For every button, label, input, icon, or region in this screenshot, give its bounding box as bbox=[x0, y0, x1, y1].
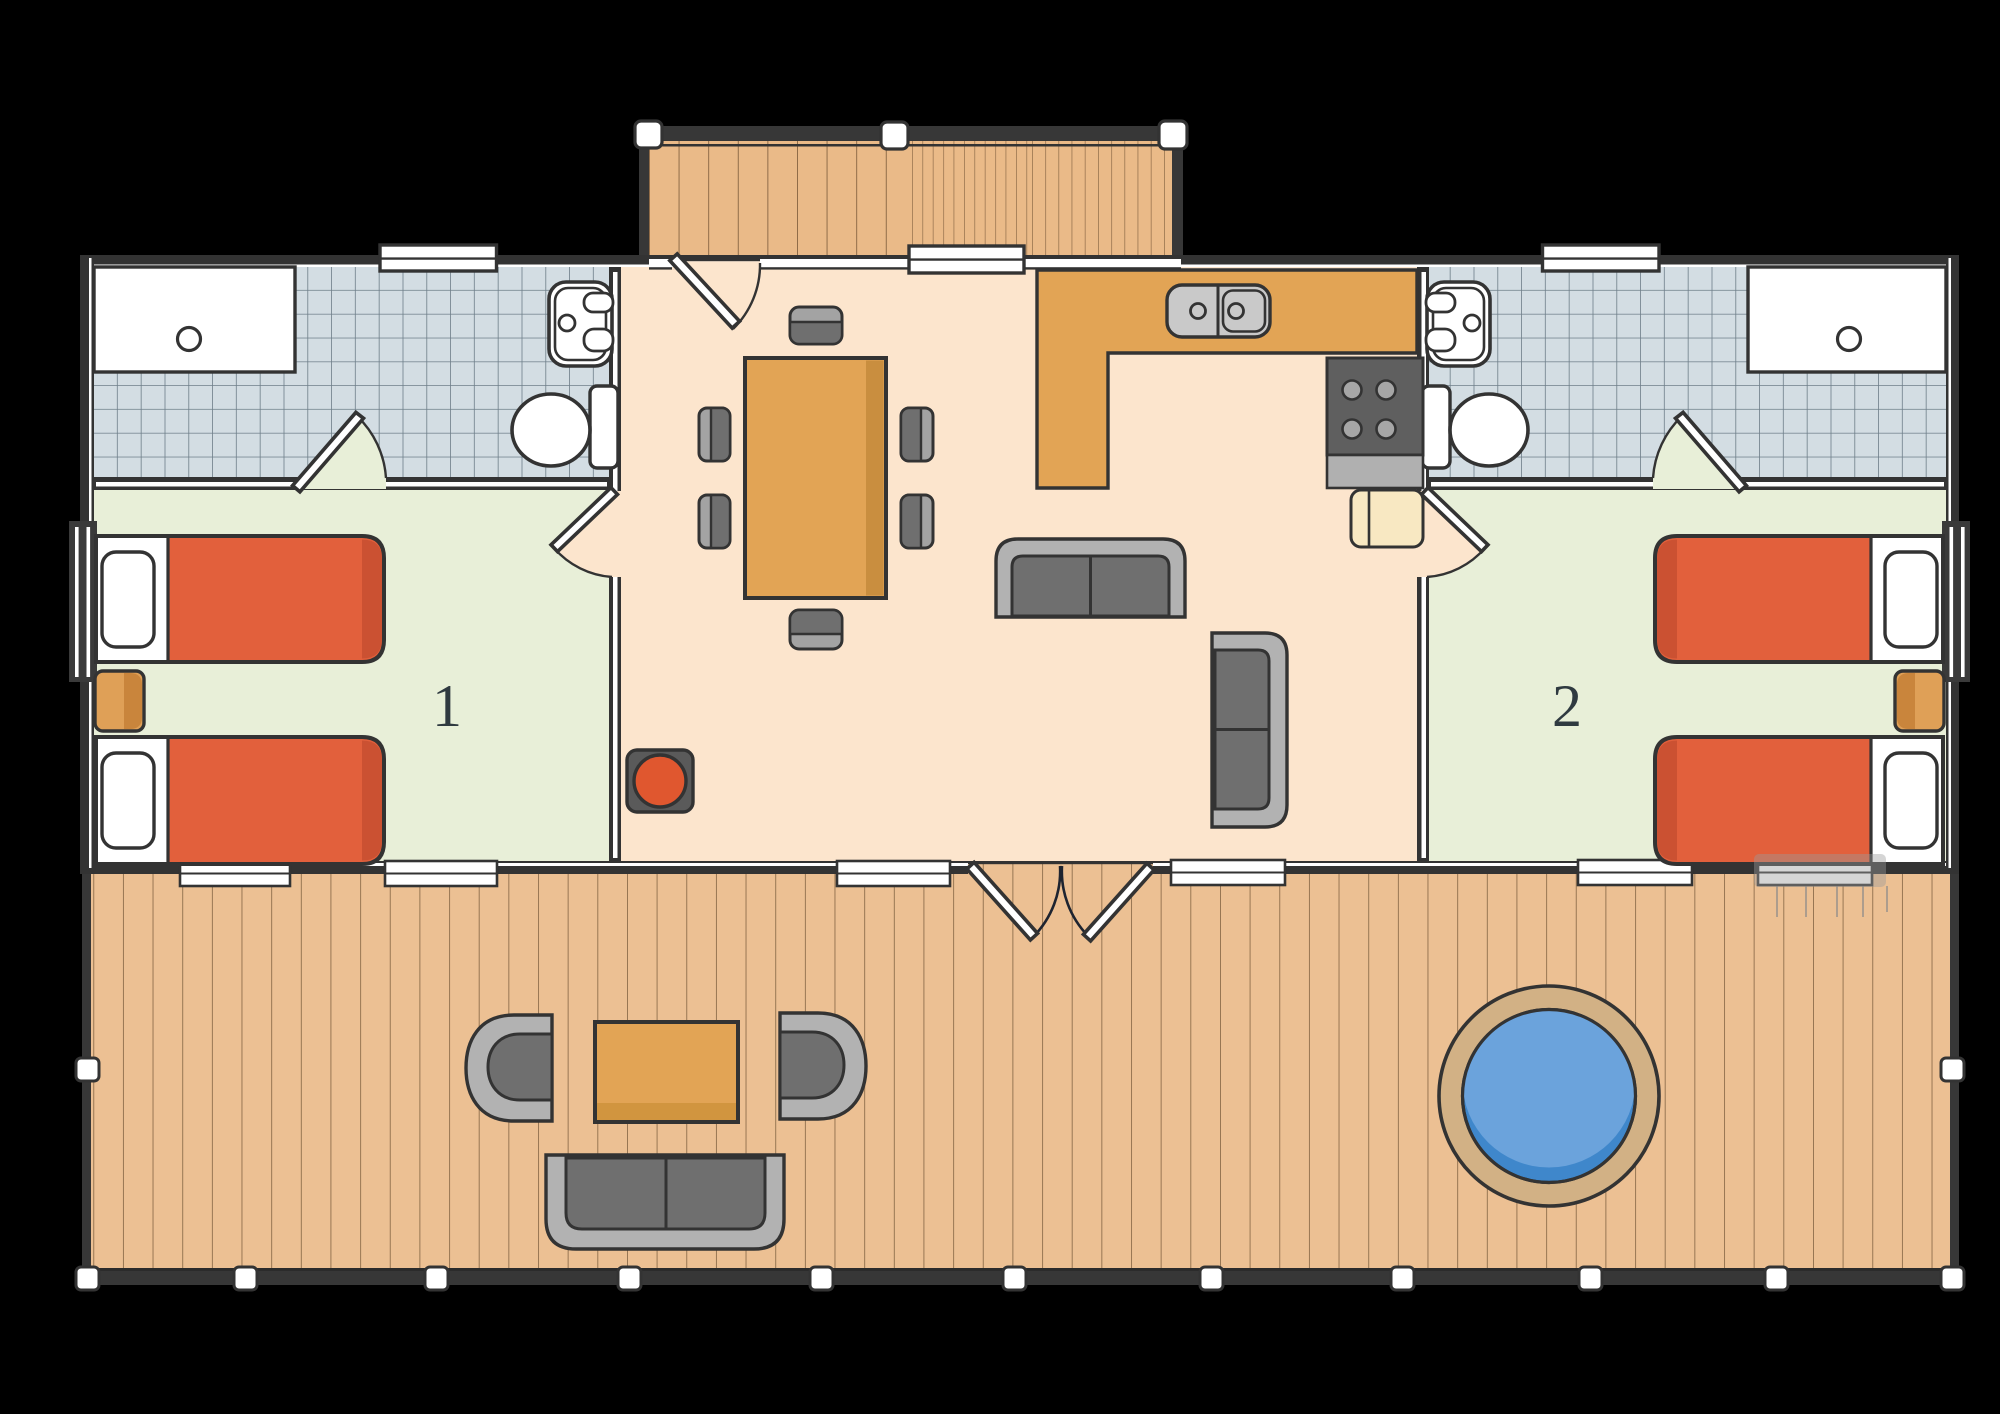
svg-text:1: 1 bbox=[432, 673, 462, 739]
svg-text:2: 2 bbox=[1552, 673, 1582, 739]
